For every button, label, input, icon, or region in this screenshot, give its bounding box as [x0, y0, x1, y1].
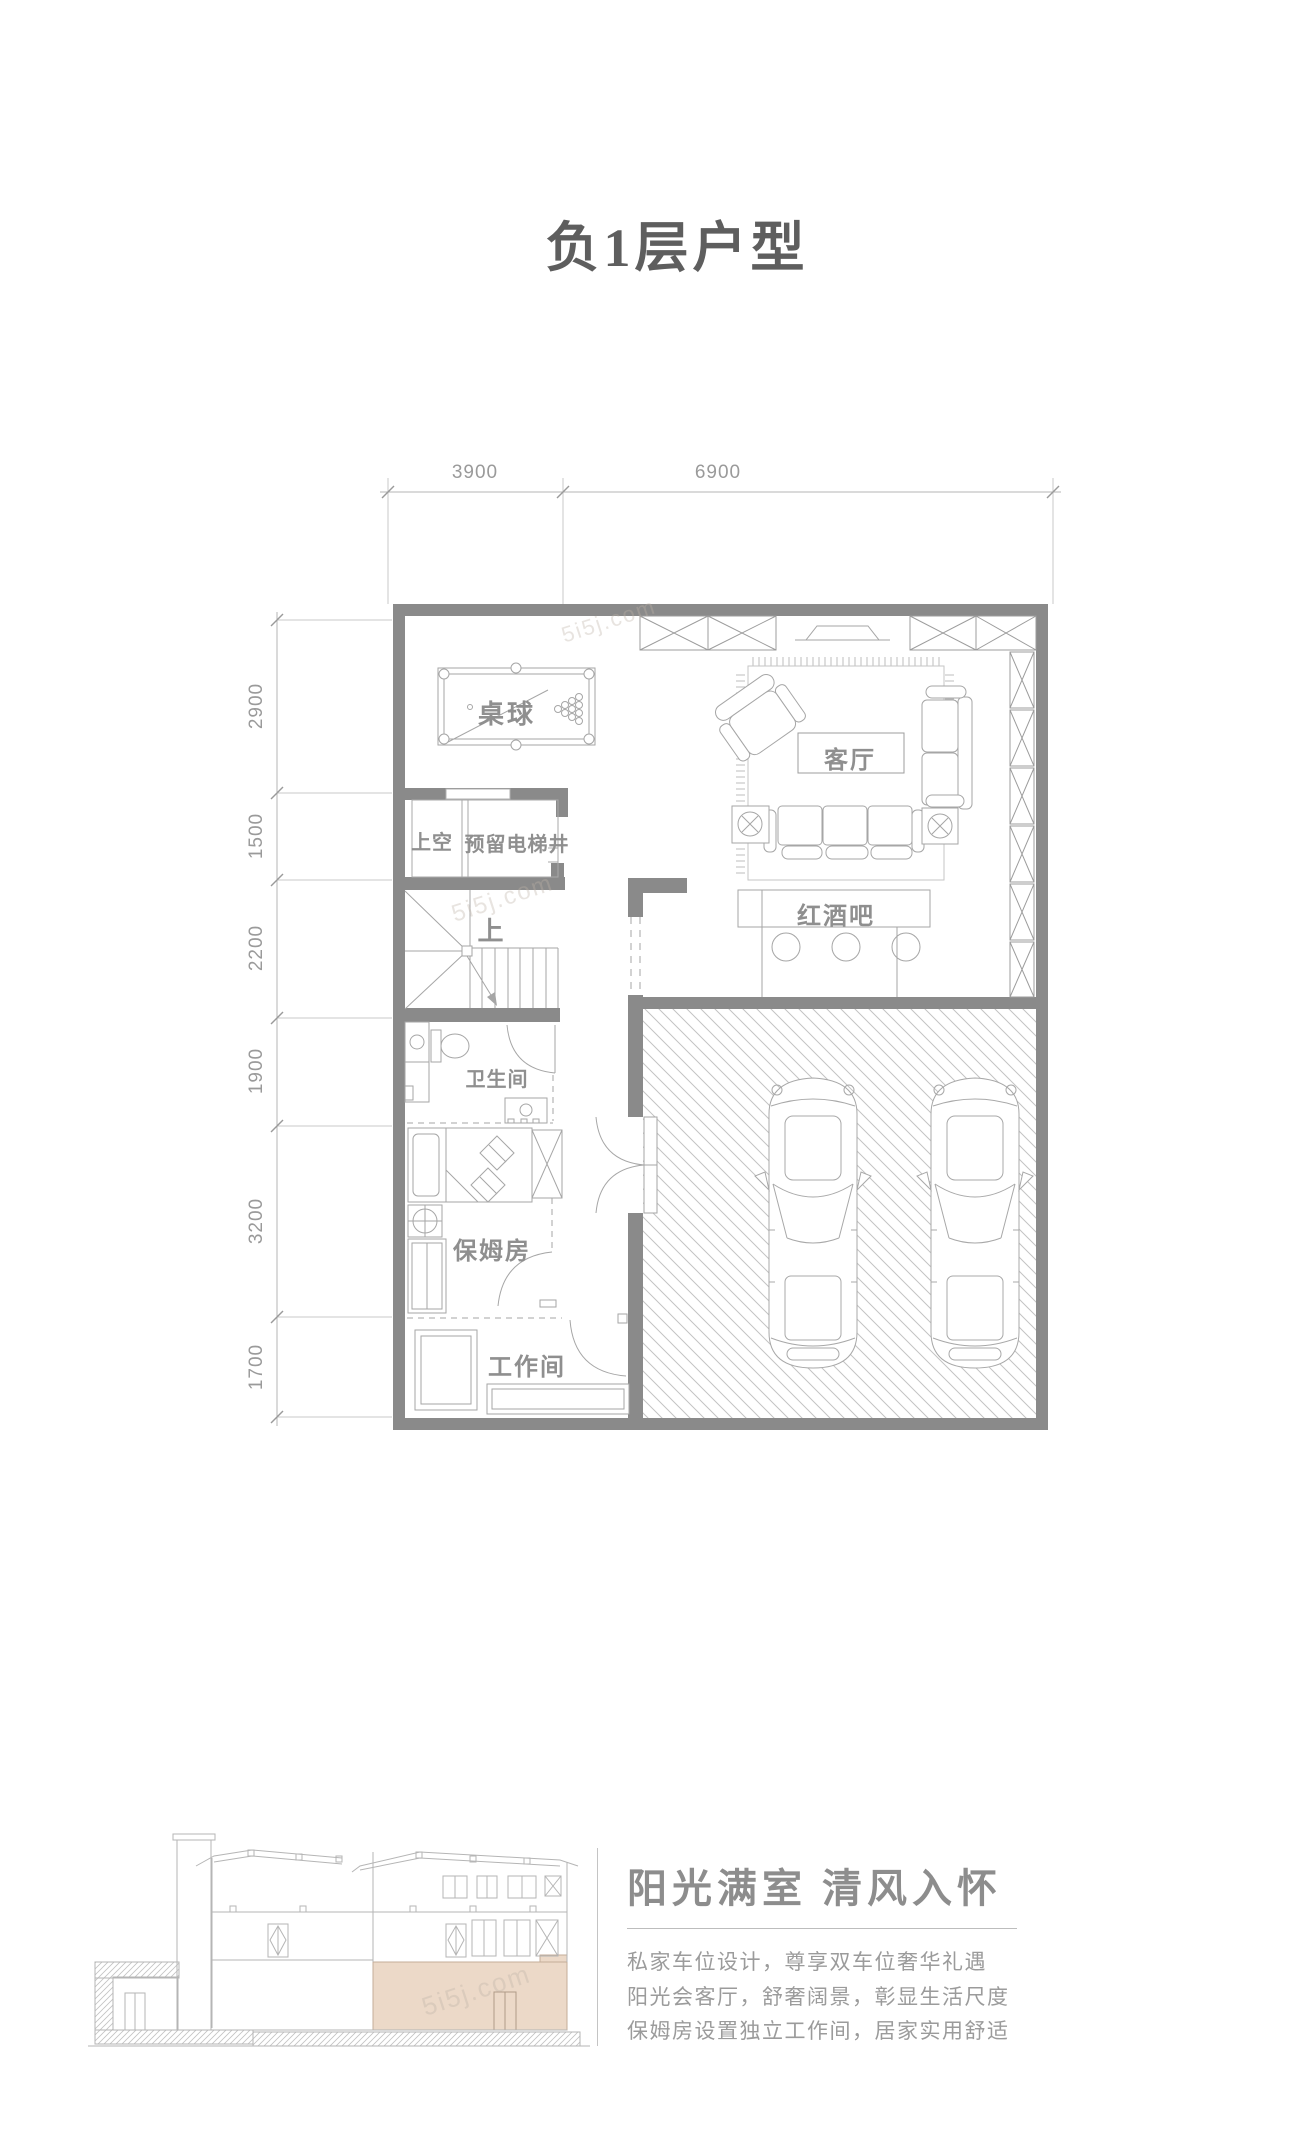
toilet-tank: [431, 1030, 441, 1062]
bar-stool: [892, 933, 920, 961]
dim-left-2200: 2200: [246, 888, 268, 1008]
dim-top-3900: 3900: [425, 462, 525, 484]
dim-left-2900: 2900: [246, 646, 268, 766]
room-label-bathroom: 卫生间: [437, 1063, 557, 1092]
dim-left-3200: 3200: [246, 1161, 268, 1281]
marketing-line-1: 私家车位设计，尊享双车位奢华礼遇: [627, 1945, 987, 1980]
room-label-living: 客厅: [800, 740, 900, 775]
room-label-elevator: 预留电梯井: [447, 828, 587, 857]
top-wall-cabinets: [640, 616, 1036, 650]
floor-plan-page: 负1层户型 3900 6900 2900 1500 2200 1900 3200…: [0, 0, 1315, 2146]
dim-top-6900: 6900: [668, 462, 768, 484]
toilet-bowl: [441, 1034, 469, 1058]
headline-underline: [627, 1928, 1017, 1929]
nanny-room-furniture: [407, 1098, 562, 1318]
marketing-line-3: 保姆房设置独立工作间，居家实用舒适: [627, 2014, 1010, 2049]
floor-plan-graphics: [0, 0, 1315, 2146]
bar-stool: [772, 933, 800, 961]
dim-left-1700: 1700: [246, 1307, 268, 1427]
text-block-divider: [597, 1848, 598, 2046]
dim-left-1900: 1900: [246, 1011, 268, 1131]
building-section: [88, 1834, 590, 2046]
bar-stool: [832, 933, 860, 961]
room-label-wine-bar: 红酒吧: [776, 896, 896, 931]
garage-doors: [596, 1117, 657, 1213]
armchair: [707, 668, 808, 765]
dim-left-1500: 1500: [246, 776, 268, 896]
room-label-billiards: 桌球: [457, 694, 557, 731]
page-title: 负1层户型: [477, 203, 877, 282]
car-2: [917, 1078, 1033, 1368]
marketing-headline: 阳光满室 清风入怀: [627, 1856, 1002, 1914]
pillow: [413, 1134, 439, 1196]
bottom-sofa: [764, 806, 924, 859]
stair-direction-arrow: [467, 956, 494, 1000]
elevator-wall-window: [446, 789, 510, 799]
room-label-workroom: 工作间: [467, 1347, 587, 1382]
room-label-nanny: 保姆房: [432, 1231, 552, 1266]
marketing-line-2: 阳光会客厅，舒奢阔景，彰显生活尺度: [627, 1980, 1010, 2015]
right-sofa: [922, 686, 972, 809]
room-label-stairs-up: 上: [462, 911, 522, 948]
right-closet-column: [1010, 652, 1034, 997]
car-1: [755, 1078, 871, 1368]
tv-icon: [795, 626, 890, 640]
